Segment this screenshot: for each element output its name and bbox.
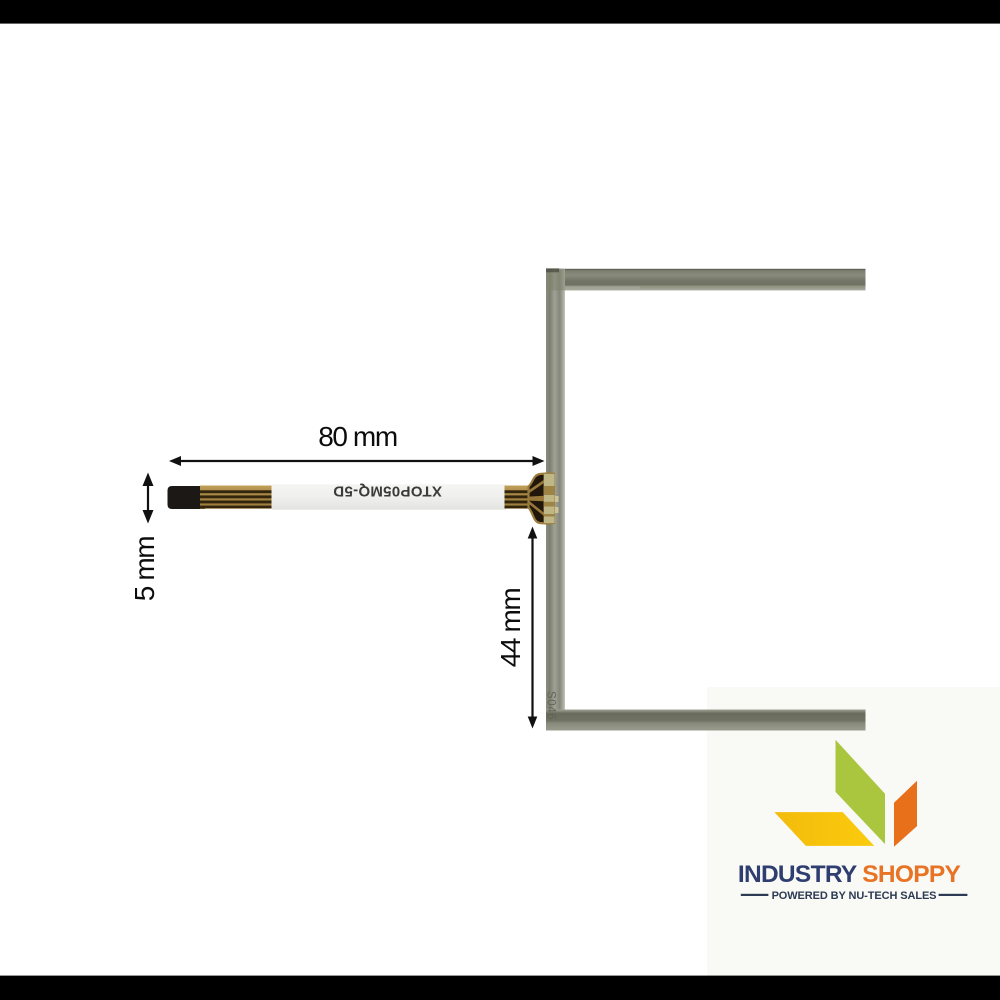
svg-text:44 mm: 44 mm [495,589,526,668]
svg-text:POWERED BY NU-TECH SALES: POWERED BY NU-TECH SALES [772,890,937,902]
svg-text:INDUSTRY SHOPPY: INDUSTRY SHOPPY [738,861,961,888]
svg-text:5 mm: 5 mm [129,537,160,601]
svg-text:S046: S046 [545,691,557,720]
svg-text:XTOP05MQ-5D: XTOP05MQ-5D [333,483,442,500]
svg-text:80 mm: 80 mm [318,421,397,452]
